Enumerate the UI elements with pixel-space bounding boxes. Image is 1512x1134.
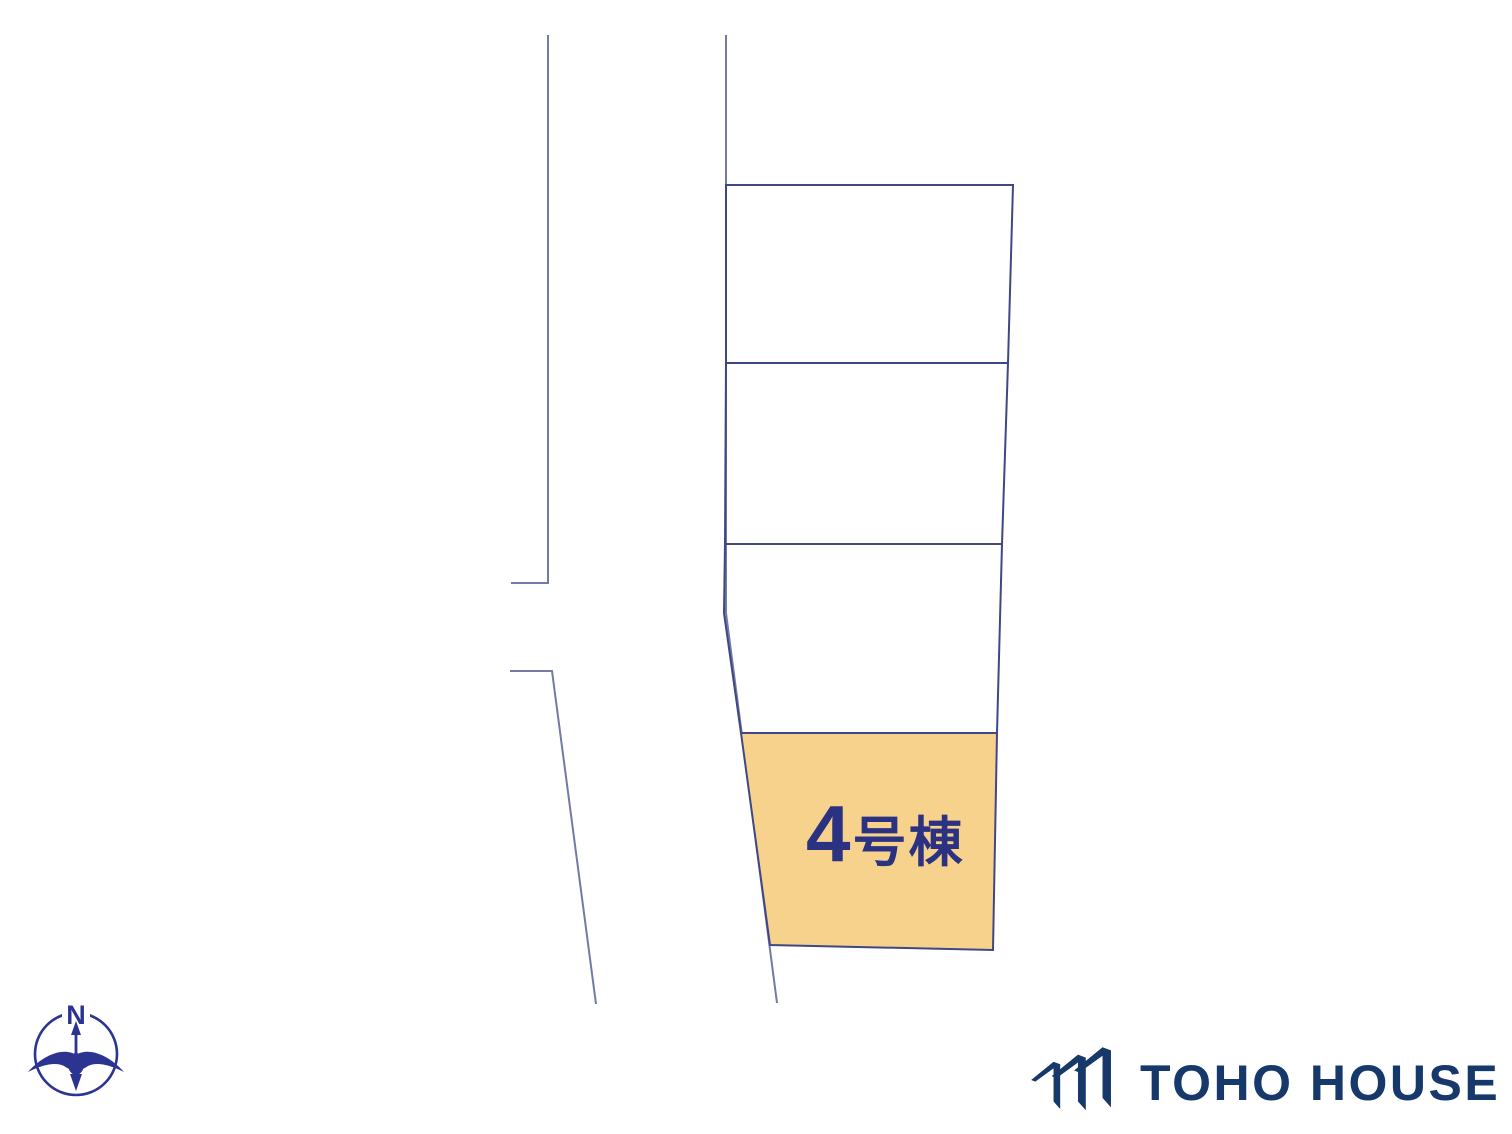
brand-name: TOHO HOUSE: [1140, 1058, 1500, 1108]
plot-4-number: 4: [806, 794, 853, 874]
road-edge-left-lower: [510, 671, 596, 1004]
logo-chevron-1: [1031, 1062, 1060, 1109]
compass-bird-body: [68, 1053, 84, 1075]
road-edge-left-upper: [511, 35, 548, 583]
compass-bird-tail: [70, 1074, 82, 1091]
site-plan-page: 4号棟 N TOHO HOUSE: [0, 0, 1512, 1134]
compass-north-icon: N: [16, 992, 136, 1107]
plot-1: [726, 185, 1013, 363]
plot-2: [725, 363, 1008, 544]
plot-4-suffix: 号棟: [853, 816, 965, 870]
toho-house-logo-icon: [1030, 1042, 1125, 1122]
site-plan-drawing: [0, 0, 1512, 1134]
plot-4-label: 4号棟: [806, 794, 965, 874]
plot-3: [724, 544, 1002, 733]
brand-logo: TOHO HOUSE: [1030, 1038, 1512, 1128]
